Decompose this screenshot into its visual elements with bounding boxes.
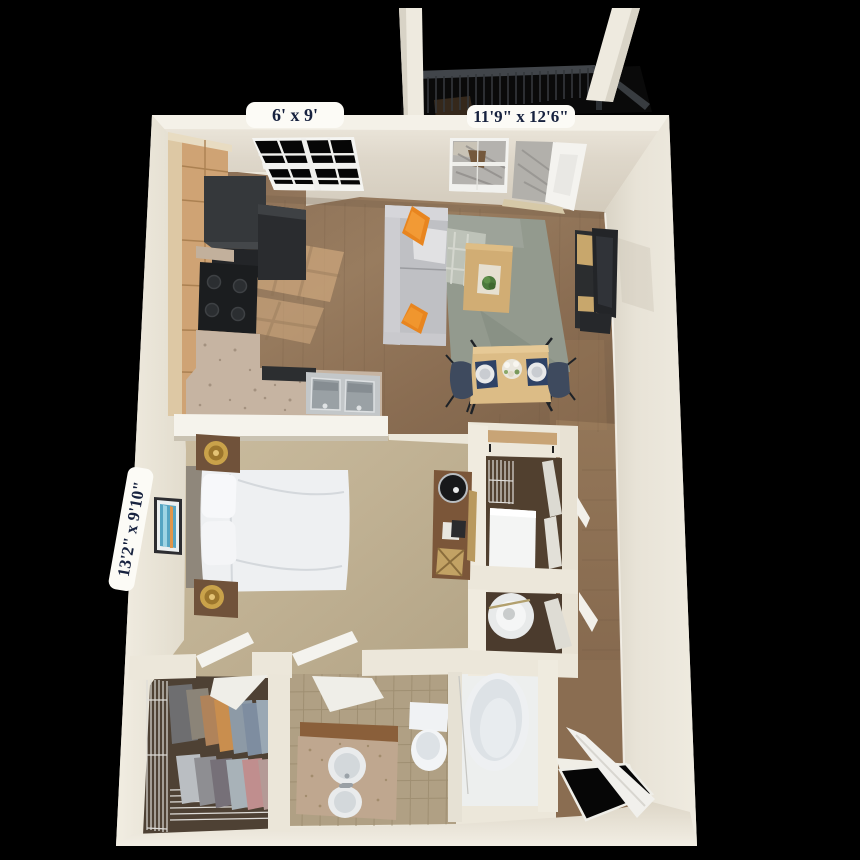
svg-text:11'9" x 12'6": 11'9" x 12'6" — [473, 107, 568, 126]
svg-text:6' x 9': 6' x 9' — [272, 105, 318, 125]
